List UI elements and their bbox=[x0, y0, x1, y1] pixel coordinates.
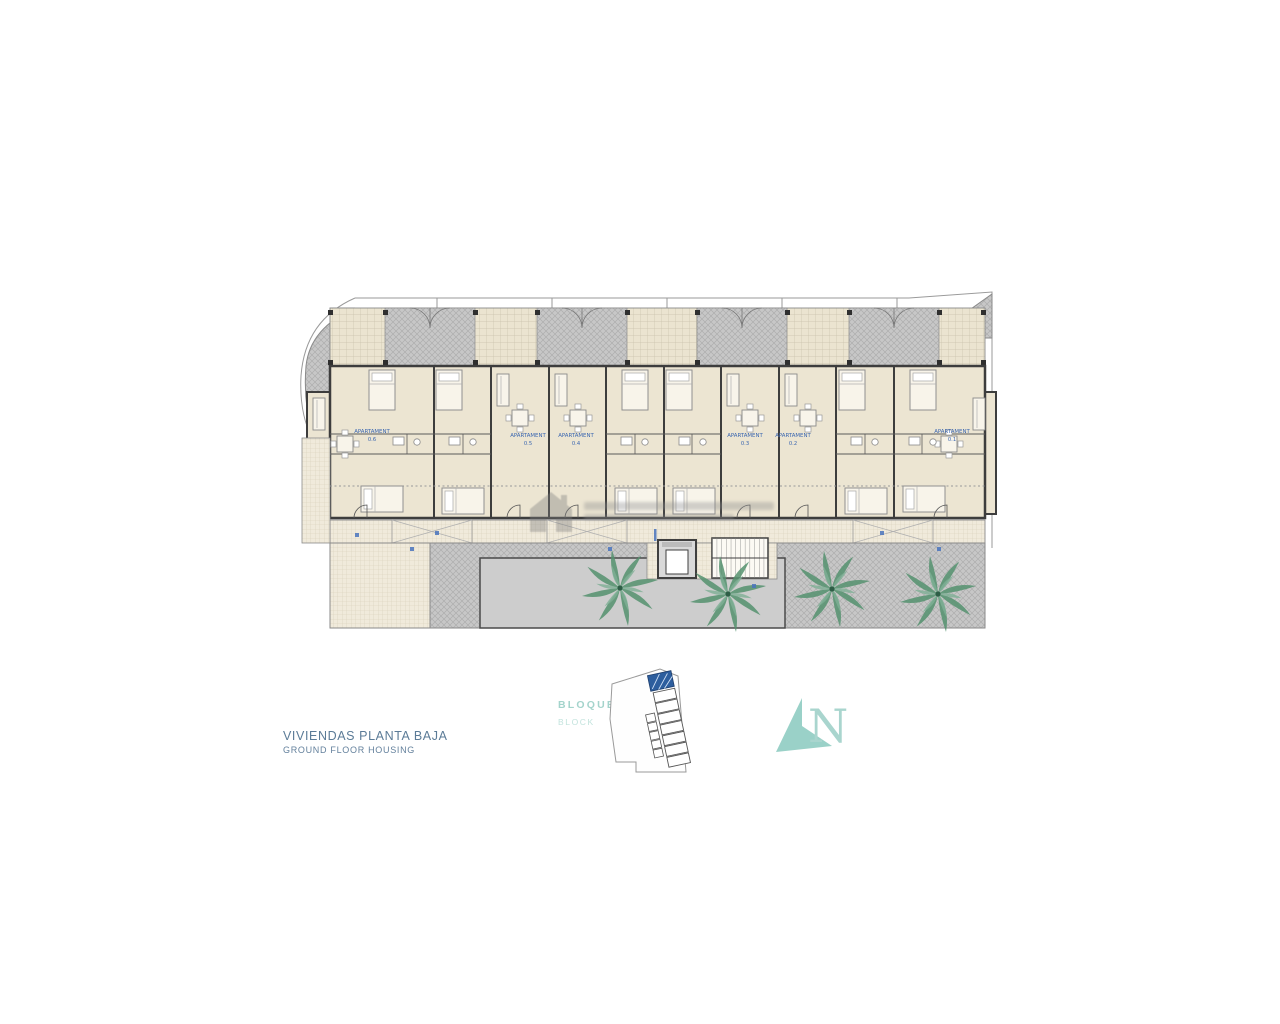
svg-text:0.4: 0.4 bbox=[572, 441, 581, 447]
legend-title: VIVIENDAS PLANTA BAJA GROUND FLOOR HOUSI… bbox=[283, 729, 448, 755]
site-plan-drawing bbox=[598, 664, 710, 778]
svg-text:APARTAMENT: APARTAMENT bbox=[354, 429, 390, 435]
floor-plan-page: { "title": { "line1": "VIVIENDAS PLANTA … bbox=[0, 0, 1280, 1024]
svg-text:APARTAMENT: APARTAMENT bbox=[775, 433, 811, 439]
floor-plan-drawing: APARTAMENT 0.6 APARTAMENT 0.5 APARTAMENT… bbox=[297, 286, 997, 638]
svg-text:APARTAMENT: APARTAMENT bbox=[934, 429, 970, 435]
north-arrow: N bbox=[766, 686, 854, 774]
terrace-band bbox=[328, 308, 986, 366]
beds-bottom bbox=[361, 486, 945, 514]
svg-text:0.6: 0.6 bbox=[368, 437, 376, 443]
svg-text:0.1: 0.1 bbox=[948, 437, 956, 443]
svg-text:0.3: 0.3 bbox=[741, 441, 749, 447]
svg-text:0.5: 0.5 bbox=[524, 441, 532, 447]
site-plan-inset bbox=[598, 664, 710, 778]
svg-text:0.2: 0.2 bbox=[789, 441, 797, 447]
plan-title: VIVIENDAS PLANTA BAJA bbox=[283, 729, 448, 743]
north-letter: N bbox=[808, 699, 848, 753]
svg-text:APARTAMENT: APARTAMENT bbox=[510, 433, 546, 439]
building-strip bbox=[307, 366, 996, 518]
elevator-icon bbox=[658, 540, 696, 578]
floor-plan: APARTAMENT 0.6 APARTAMENT 0.5 APARTAMENT… bbox=[297, 286, 997, 638]
north-arrow-drawing: N bbox=[766, 686, 854, 774]
svg-text:APARTAMENT: APARTAMENT bbox=[558, 433, 594, 439]
plan-subtitle: GROUND FLOOR HOUSING bbox=[283, 745, 448, 755]
svg-text:APARTAMENT: APARTAMENT bbox=[727, 433, 763, 439]
